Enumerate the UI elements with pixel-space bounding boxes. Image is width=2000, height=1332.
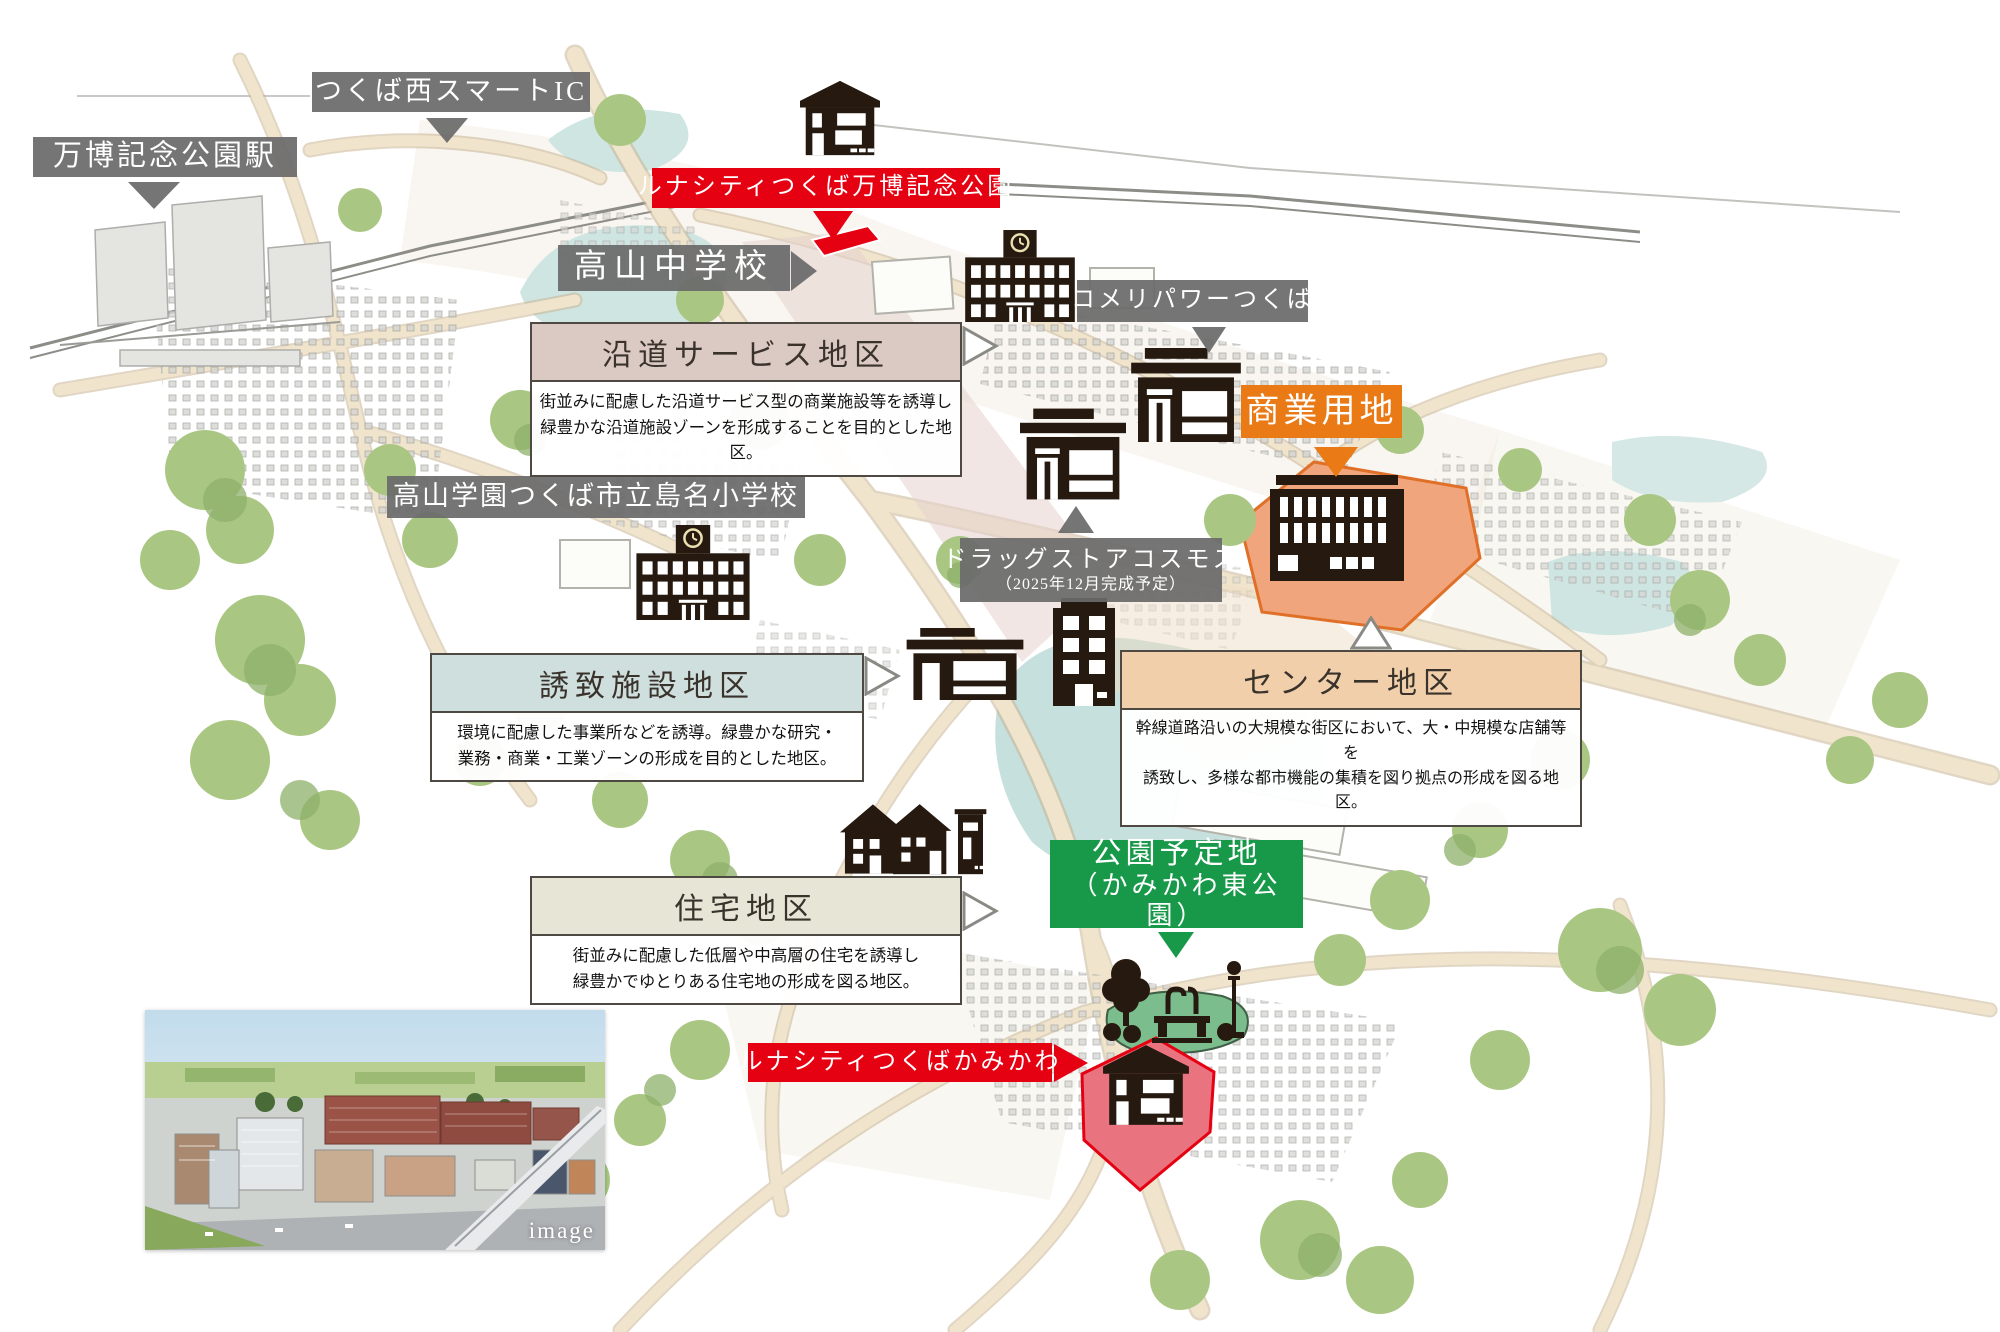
aerial-photo: image [145,1010,605,1250]
label-drugstore: ドラッグストアコスモス （2025年12月完成予定） [960,538,1222,602]
aerial-photo-art [145,1010,605,1250]
apartment-icon [1053,598,1115,706]
label-komeri: コメリパワーつくば [1077,280,1308,322]
label-banpaku-station: 万博記念公園駅 [33,137,297,177]
up-arrow-icon [1058,506,1094,533]
right-outline-arrow-icon [864,656,902,696]
label-park-line2: （かみかわ東公園） [1050,871,1303,931]
label-lunacity-kamikawa: ルナシティつくばかみかわ [748,1043,1052,1082]
label-lunacity-banpaku: ルナシティつくば万博記念公園 [652,168,1000,208]
right-outline-arrow-icon [962,891,1000,931]
label-junior-high: 高山中学校 [558,245,790,291]
district-title: 住宅地区 [532,878,960,936]
district-box-center: センター地区 幹線道路沿いの大規模な街区において、大・中規模な店舗等を 誘致し、… [1120,650,1582,827]
district-description: 幹線道路沿いの大規模な街区において、大・中規模な店舗等を 誘致し、多様な都市機能… [1122,710,1580,825]
label-park: 公園予定地 （かみかわ東公園） [1050,840,1303,928]
district-description: 街並みに配慮した沿道サービス型の商業施設等を誘導し 緑豊かな沿道施設ゾーンを形成… [532,382,960,475]
up-outline-arrow-icon [1350,616,1392,650]
district-title: センター地区 [1122,652,1580,710]
down-arrow-icon-red [813,211,853,240]
label-drugstore-name: ドラッグストアコスモス [943,546,1240,575]
school-icon-elementary [635,525,751,620]
district-box-invited-facilities: 誘致施設地区 環境に配慮した事業所などを誘導。緑豊かな研究・ 業務・商業・工業ゾ… [430,653,864,782]
label-smart-ic: つくば西スマートIC [312,72,590,112]
houses-icon-group-b [888,795,1013,880]
store-icon-komeri [1130,348,1242,442]
store-icon-drugstore [1020,408,1126,500]
park-icon [1100,952,1250,1048]
down-arrow-icon [128,182,180,209]
down-arrow-icon [426,118,468,143]
district-description: 街並みに配慮した低層や中高層の住宅を誘導し 緑豊かでゆとりある住宅地の形成を図る… [532,936,960,1003]
store-icon-center [906,628,1024,700]
label-drugstore-note: （2025年12月完成予定） [996,575,1186,594]
district-title: 誘致施設地区 [432,655,862,713]
house-icon [797,78,883,158]
commercial-building-icon [1270,475,1404,581]
photo-caption: image [529,1218,595,1244]
school-icon-junior-high [965,230,1075,322]
district-title: 沿道サービス地区 [532,324,960,382]
down-arrow-icon-orange [1314,447,1358,477]
right-outline-arrow-icon [962,326,1000,366]
district-box-residential: 住宅地区 街並みに配慮した低層や中高層の住宅を誘導し 緑豊かでゆとりある住宅地の… [530,876,962,1005]
house-icon-kamikawa [1100,1042,1192,1128]
label-park-line1: 公園予定地 [1092,837,1262,872]
label-commercial-land: 商業用地 [1241,385,1402,438]
down-arrow-icon [1192,327,1226,353]
label-elementary: 高山学園つくば市立島名小学校 [387,476,805,518]
right-arrow-icon [791,251,817,291]
illustrated-development-map: image [0,0,2000,1332]
district-description: 環境に配慮した事業所などを誘導。緑豊かな研究・ 業務・商業・工業ゾーンの形成を目… [432,713,862,780]
down-arrow-icon-green [1158,932,1194,958]
district-box-roadside-service: 沿道サービス地区 街並みに配慮した沿道サービス型の商業施設等を誘導し 緑豊かな沿… [530,322,962,477]
